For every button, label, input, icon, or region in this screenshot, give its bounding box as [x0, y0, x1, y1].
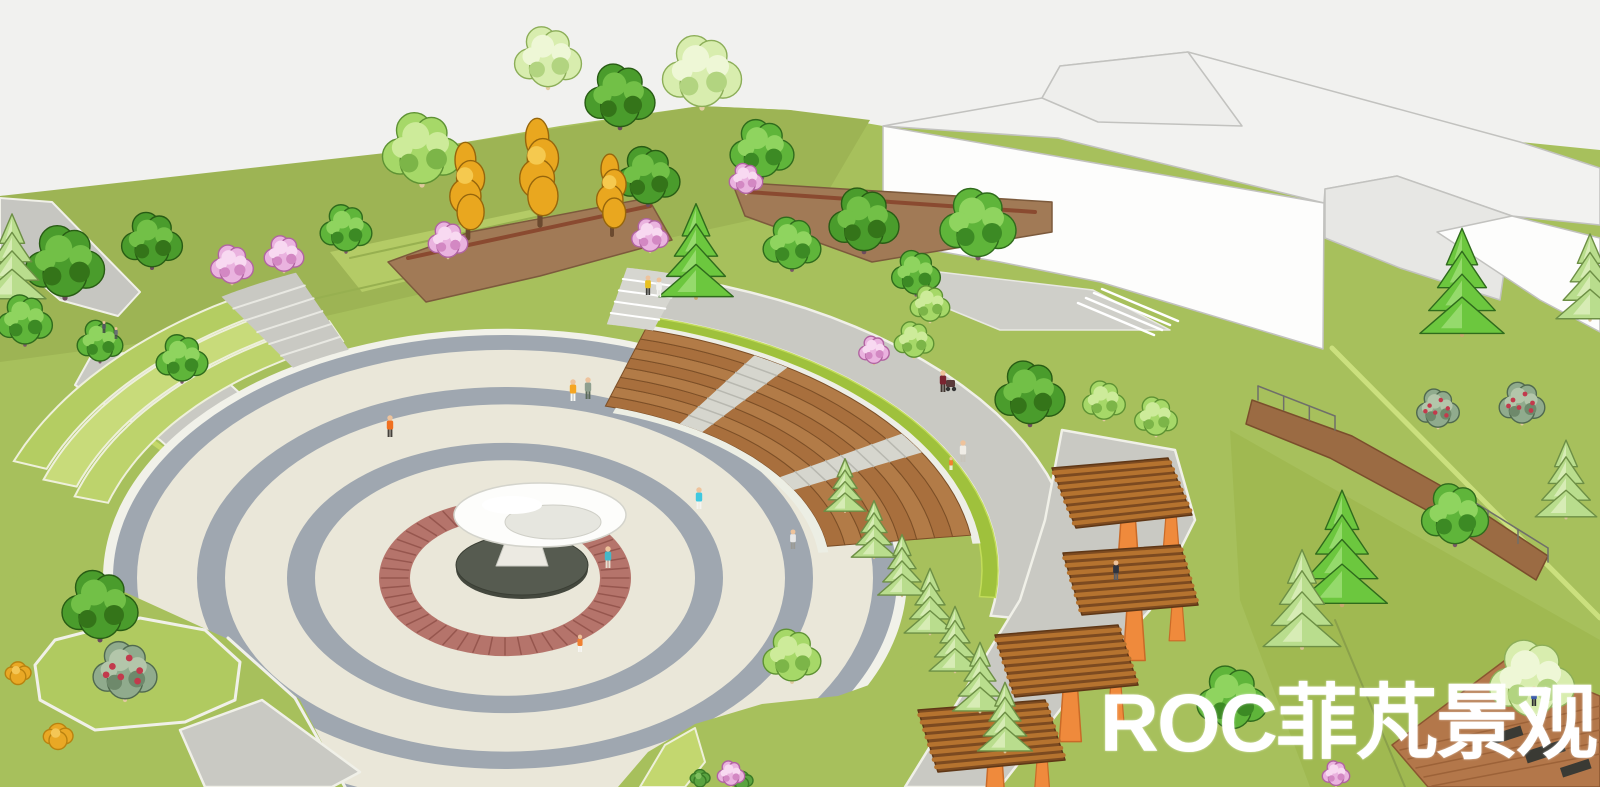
- landscape-render: [0, 0, 1600, 787]
- stroller-wheel: [946, 387, 950, 391]
- pergola-post: [1059, 686, 1081, 742]
- stroller: [946, 380, 955, 387]
- pergola-post: [1169, 603, 1185, 641]
- landscape-render-stage: ROC菲芃景观: [0, 0, 1600, 787]
- stroller-wheel: [952, 387, 956, 391]
- sculpture-highlight: [482, 496, 542, 514]
- watermark: ROC菲芃景观: [1100, 683, 1596, 765]
